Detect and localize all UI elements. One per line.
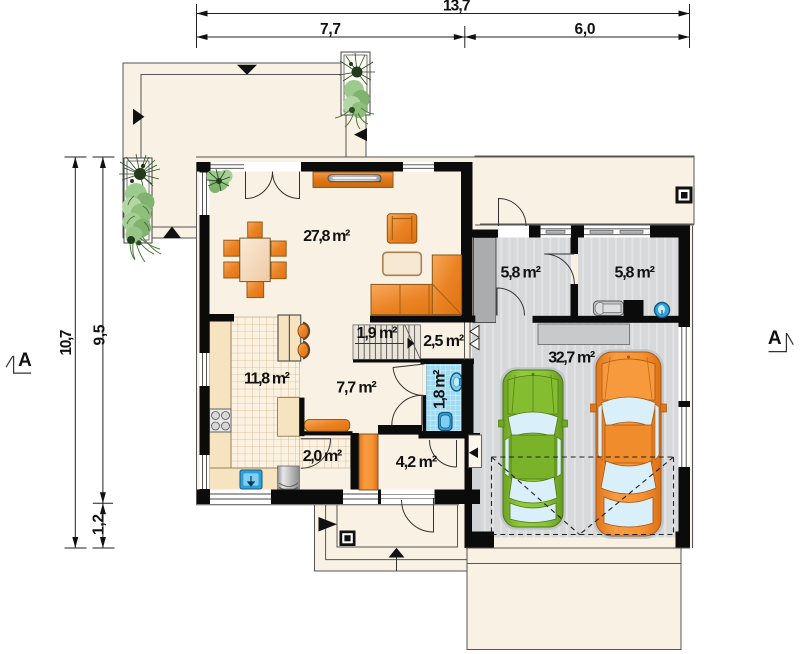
svg-text:9,5: 9,5 <box>92 324 109 345</box>
svg-text:11,8 m²: 11,8 m² <box>244 371 290 388</box>
svg-text:5,8 m²: 5,8 m² <box>614 265 655 282</box>
svg-text:7,7 m²: 7,7 m² <box>336 380 377 397</box>
svg-text:1,9 m²: 1,9 m² <box>357 325 398 342</box>
svg-text:A: A <box>768 328 782 349</box>
svg-text:5,8 m²: 5,8 m² <box>500 265 541 282</box>
svg-text:13,7: 13,7 <box>443 0 471 15</box>
svg-text:27,8 m²: 27,8 m² <box>303 228 350 245</box>
svg-text:2,5 m²: 2,5 m² <box>423 333 464 350</box>
svg-text:10,7: 10,7 <box>58 330 75 356</box>
svg-text:7,7: 7,7 <box>320 21 341 38</box>
svg-text:6,0: 6,0 <box>575 21 596 38</box>
svg-text:2,0 m²: 2,0 m² <box>303 448 343 465</box>
svg-text:1,2: 1,2 <box>91 514 108 535</box>
svg-text:32,7 m²: 32,7 m² <box>548 350 595 367</box>
svg-text:1,8 m²: 1,8 m² <box>432 370 449 410</box>
svg-text:4,2 m²: 4,2 m² <box>396 454 438 471</box>
svg-text:A: A <box>18 350 32 371</box>
